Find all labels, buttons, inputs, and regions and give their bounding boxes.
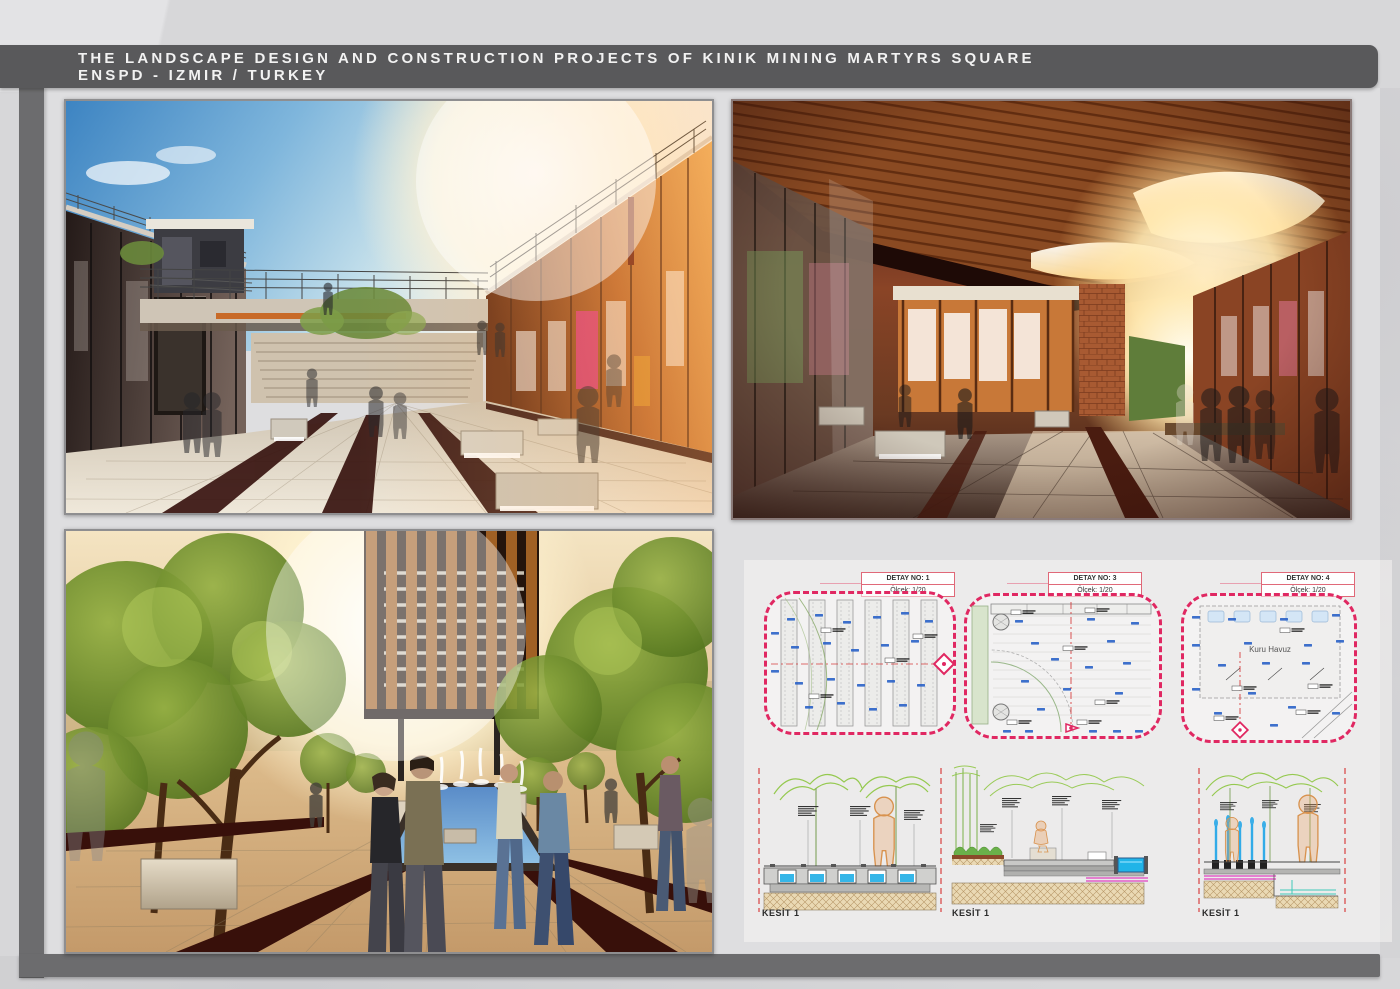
section-drawing-3 xyxy=(1196,762,1348,924)
detail-plan-3: Kuru Havuz xyxy=(1181,593,1357,743)
annotation-stacks xyxy=(798,806,924,820)
waterproofing-lines xyxy=(1086,878,1148,881)
child-figure xyxy=(1225,817,1238,862)
section-marker-arrow xyxy=(1066,724,1078,732)
detail-plan-2 xyxy=(964,593,1162,739)
rendering-covered-street xyxy=(731,99,1352,520)
section-3-label: KESİT 1 xyxy=(1202,908,1240,918)
planting-bed xyxy=(952,847,1004,865)
annotation-stacks xyxy=(980,796,1121,832)
detail-plan-1 xyxy=(764,591,956,735)
detail-2-title: DETAY NO: 3 xyxy=(1049,573,1141,585)
ground-layers xyxy=(1204,862,1340,908)
fountain-jets xyxy=(1212,815,1267,869)
detail-3-title: DETAY NO: 4 xyxy=(1262,573,1354,585)
callout-notes xyxy=(1007,608,1120,725)
detail-1-title: DETAY NO: 1 xyxy=(862,573,954,585)
presentation-board: THE LANDSCAPE DESIGN AND CONSTRUCTION PR… xyxy=(0,0,1400,989)
couple-foreground xyxy=(368,755,446,952)
detail-3-label-tail xyxy=(1220,583,1261,584)
human-figure xyxy=(874,797,894,866)
leader-lines xyxy=(808,820,914,866)
tree-canopies xyxy=(774,774,930,800)
rendering-courtyard-plaza xyxy=(64,99,714,515)
corner-diagonals xyxy=(1302,692,1352,738)
detail-1-label-tail xyxy=(820,583,861,584)
project-title: THE LANDSCAPE DESIGN AND CONSTRUCTION PR… xyxy=(78,50,1378,67)
pool xyxy=(1114,856,1148,874)
floor-hatch xyxy=(993,616,1151,715)
board-frame-left xyxy=(19,88,44,978)
column-circles xyxy=(993,614,1009,720)
section-1-label: KESİT 1 xyxy=(762,908,800,918)
subgrade-hatch xyxy=(952,883,1144,904)
section-drawing-1 xyxy=(756,762,944,924)
title-bar: THE LANDSCAPE DESIGN AND CONSTRUCTION PR… xyxy=(0,45,1378,88)
section-marker-diamond xyxy=(1232,722,1248,738)
tree-canopies xyxy=(1206,773,1338,796)
pool-label: Kuru Havuz xyxy=(1249,645,1291,654)
rendering-fountain-plaza xyxy=(64,529,714,954)
seated-figure-and-bench xyxy=(1030,821,1106,860)
section-drawing-2 xyxy=(946,762,1152,924)
board-frame-bottom xyxy=(19,954,1380,977)
planter-strips xyxy=(781,600,937,726)
vignette xyxy=(733,101,1350,518)
project-subtitle: ENSPD - IZMIR / TURKEY xyxy=(78,67,1378,84)
adult-figure xyxy=(1298,795,1318,862)
section-2-label: KESİT 1 xyxy=(952,908,990,918)
planting-strip xyxy=(972,606,988,724)
dimension-ticks xyxy=(1003,618,1143,733)
tree-canopies xyxy=(952,766,1144,796)
channel-section xyxy=(764,864,936,892)
detail-2-label-tail xyxy=(1007,583,1048,584)
bamboo-stems xyxy=(956,768,977,854)
